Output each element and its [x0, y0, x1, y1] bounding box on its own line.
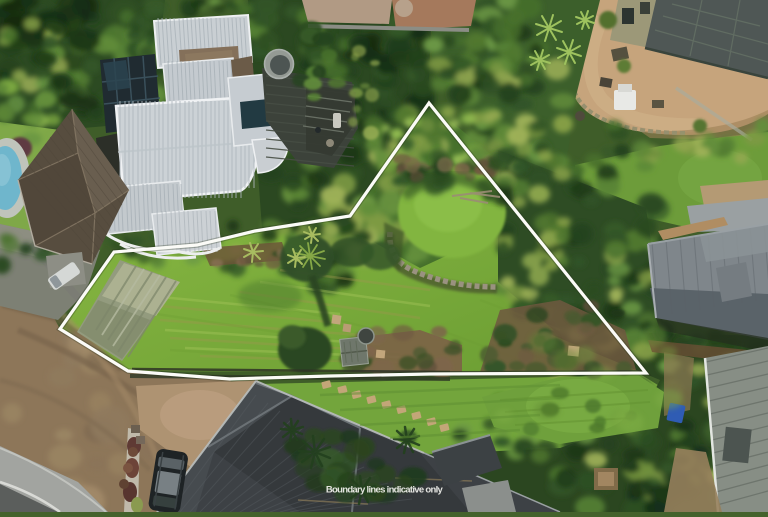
svg-text:Boundary lines indicative only: Boundary lines indicative only — [326, 485, 444, 496]
